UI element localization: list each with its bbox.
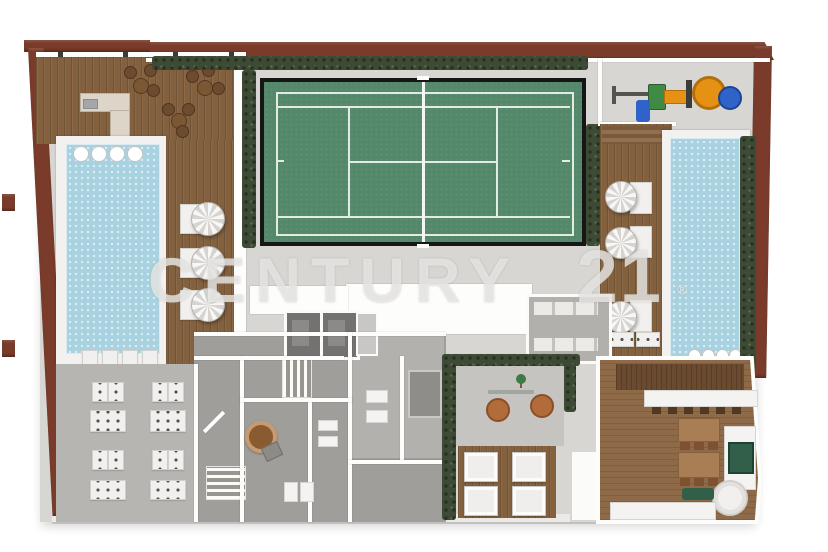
planter-hedge-top: [152, 56, 588, 70]
bar-stool: [147, 84, 160, 97]
shower-stall: [300, 482, 314, 502]
bbq-grill: [728, 442, 754, 474]
planter-hedge-west: [242, 70, 256, 248]
interior-wall: [240, 398, 352, 402]
deck-steps: [602, 126, 670, 144]
double-lounger: [150, 410, 186, 432]
garden-hedge-west: [442, 354, 456, 520]
floor-plan-canvas: CENTURY 21 ®: [0, 0, 828, 552]
lounge-chair: [92, 450, 108, 470]
daybed-sofa: [512, 452, 546, 482]
interior-wall: [400, 356, 404, 462]
cafe-table: [197, 80, 213, 96]
bathroom-fixture: [366, 410, 388, 423]
counter-stool: [732, 407, 741, 414]
planter-hedge-east-court: [586, 124, 600, 246]
umbrella-icon: [605, 227, 637, 259]
shower-stall: [284, 482, 298, 502]
dining-chair: [694, 478, 704, 486]
dining-table-2: [678, 452, 720, 478]
right-pool: [670, 138, 740, 370]
interior-wall: [240, 356, 244, 522]
dining-chair: [694, 442, 704, 450]
lounge-chair: [152, 382, 168, 402]
playground-slide: [636, 100, 650, 122]
double-lounger: [90, 480, 126, 500]
sun-lounger-flat: [610, 332, 634, 347]
storage-room: [408, 370, 442, 418]
court-center-mark-right: [562, 160, 570, 162]
playground-swing-bar: [614, 92, 652, 96]
counter-stool: [652, 407, 661, 414]
dining-chair: [680, 442, 690, 450]
lounge-chair: [168, 382, 184, 402]
interior-wall: [348, 332, 352, 522]
lounge-chair: [92, 382, 108, 402]
bar-sink: [83, 99, 98, 109]
bathroom-fixture: [366, 390, 388, 403]
interior-wall: [194, 356, 344, 360]
counter-stool: [668, 407, 677, 414]
round-table: [712, 480, 748, 516]
pool-step-circle: [91, 146, 107, 162]
sauna-bench: [534, 338, 598, 351]
garden-table: [530, 394, 554, 418]
column-post: [58, 52, 63, 57]
garden-hedge-top: [442, 354, 580, 366]
umbrella-icon: [191, 202, 225, 236]
counter-stool: [716, 407, 725, 414]
planter-hedge-east-pool: [740, 136, 756, 370]
wall-tab-left-lower: [2, 340, 15, 357]
garden-hedge-east: [564, 364, 576, 412]
daybed-sofa: [464, 486, 498, 516]
court-doubles-line: [276, 92, 574, 236]
tree-trunk: [520, 383, 522, 388]
stairs-core: [282, 358, 312, 398]
pool-step-circle: [127, 146, 143, 162]
dining-chair: [680, 478, 690, 486]
lounge-chair: [108, 450, 124, 470]
counter-stool: [684, 407, 693, 414]
lounge-chair: [168, 450, 184, 470]
bar-counter-return: [110, 110, 130, 139]
double-lounger: [90, 410, 126, 432]
bathroom-fixture: [318, 436, 338, 447]
garden-bench: [682, 488, 714, 500]
bar-stool: [182, 103, 195, 116]
interior-wall: [194, 332, 446, 336]
bar-stool: [212, 82, 225, 95]
dining-bar-counter: [616, 364, 744, 390]
wall-tab-left-upper: [2, 194, 15, 211]
umbrella-icon: [191, 288, 225, 322]
bar-stool: [176, 125, 189, 138]
tennis-net-line: [422, 82, 425, 242]
column-post: [123, 52, 128, 57]
umbrella-icon: [191, 246, 225, 280]
daybed-sofa: [512, 486, 546, 516]
interior-wall: [308, 398, 312, 522]
court-center-mark-left: [276, 160, 284, 162]
double-lounger: [150, 480, 186, 500]
playground-dome: [718, 86, 742, 110]
lounge-chair: [108, 382, 124, 402]
interior-wall: [194, 364, 198, 522]
net-post-bottom: [417, 244, 429, 248]
interior-wall: [348, 460, 446, 464]
left-pool: [66, 144, 160, 354]
dining-table-1: [678, 418, 720, 442]
pool-step-circle: [109, 146, 125, 162]
daybed-sofa: [464, 452, 498, 482]
tiny-plan-label: [488, 390, 534, 394]
dining-terrace-strip: [610, 502, 716, 520]
sun-lounger-flat: [636, 332, 660, 347]
net-post-top: [417, 76, 429, 80]
bar-stool: [186, 70, 199, 83]
dining-chair: [708, 442, 718, 450]
bathroom-fixture: [318, 420, 338, 431]
dining-counter: [644, 390, 758, 407]
playground-wall-west: [598, 58, 602, 126]
pool-step-circle: [73, 146, 89, 162]
counter-stool: [700, 407, 709, 414]
bar-stool: [124, 66, 137, 79]
garden-table: [486, 398, 510, 422]
sauna-bench: [534, 302, 598, 315]
umbrella-icon: [605, 181, 637, 213]
lounge-chair: [152, 450, 168, 470]
